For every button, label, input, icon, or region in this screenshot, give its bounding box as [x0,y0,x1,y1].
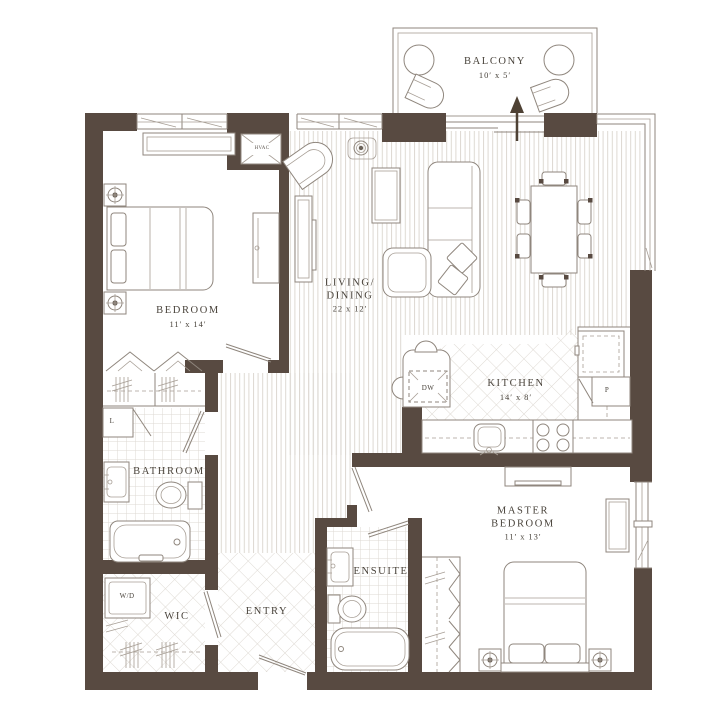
balcony-chair [405,74,448,112]
desk [253,213,279,283]
dining-table [531,186,577,273]
balcony-name: BALCONY [464,56,526,69]
dresser [143,133,235,155]
master-closet [422,557,460,672]
wic-name: WIC [164,611,189,624]
master-tv-console [505,467,571,486]
floor-plan: BALCONY 10′ x 5′ BEDROOM 11′ x 14′ LIVIN… [0,0,721,718]
living-line2: DINING [325,290,375,303]
balcony-table [404,45,434,75]
ensuite-vanity [327,548,353,586]
dining-chair [578,200,591,224]
ensuite-tub [331,628,409,670]
wic-label: WIC [164,611,189,624]
corridor-wood-floor [218,373,315,553]
master-dims: 11′ x 13′ [491,532,555,543]
bedroom-dims: 11′ x 14′ [156,318,220,329]
dining-chair [517,200,530,224]
nightstand [589,649,611,671]
master-line2: BEDROOM [491,518,555,531]
kitchen-name: KITCHEN [487,378,544,391]
bed [107,207,213,290]
linen-label: L [110,417,115,425]
pantry-label: P [605,386,609,394]
entry-label: ENTRY [246,606,288,619]
kitchen-sink [474,424,505,455]
nightstand [104,292,126,314]
entry-name: ENTRY [246,606,288,619]
ensuite-toilet [328,595,366,623]
kitchen-label: KITCHEN 14′ x 8′ [487,378,544,403]
bathroom-label: BATHROOM [133,466,205,479]
living-dining-label: LIVING/ DINING 22 x 12′ [325,278,375,315]
balcony-table [544,45,574,75]
floor-plan-drawing [0,0,721,718]
bedroom-name: BEDROOM [156,305,220,318]
master-dresser [606,499,629,552]
balcony-label: BALCONY 10′ x 5′ [464,56,526,81]
bedroom-window [137,113,227,131]
master-window [634,482,652,568]
master-bed [501,562,589,672]
dining-chair [542,274,566,287]
living-dims: 22 x 12′ [325,304,375,315]
stove [533,420,573,453]
tv [312,220,316,270]
nightstand [104,184,126,206]
living-line1: LIVING/ [325,278,375,291]
bathtub [110,521,190,562]
ensuite-label: ENSUITE [354,566,409,579]
master-line1: MASTER [491,506,555,519]
toilet [156,482,202,509]
balcony-chair [531,76,573,112]
nightstand [479,649,501,671]
fridge [575,331,624,377]
washer-dryer-label: W/D [120,592,135,600]
bathroom-vanity [104,462,129,502]
bedroom-label: BEDROOM 11′ x 14′ [156,305,220,330]
tv [515,481,561,485]
kitchen-dims: 14′ x 8′ [487,391,544,402]
balcony-dims: 10′ x 5′ [464,69,526,80]
master-bedroom-label: MASTER BEDROOM 11′ x 13′ [491,506,555,543]
dishwasher-label: DW [422,384,434,392]
ensuite-name: ENSUITE [354,566,409,579]
hvac-label: HVAC [255,146,270,152]
living-window [297,113,382,131]
master-furniture [422,467,629,672]
bathroom-name: BATHROOM [133,466,205,479]
console-table [372,168,400,223]
balcony-sliding-door[interactable] [446,122,544,132]
bedroom-door[interactable] [226,344,271,362]
dining-chair [542,172,566,185]
corridor2-wood-floor [315,373,352,518]
bar-stool [415,341,437,352]
south-counter [422,420,632,453]
